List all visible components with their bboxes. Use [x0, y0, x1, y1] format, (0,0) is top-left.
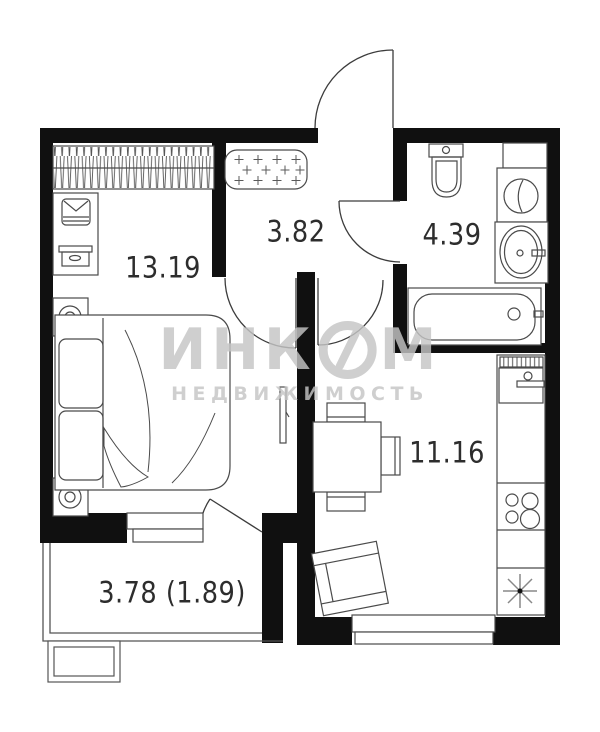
armchair [312, 541, 389, 615]
bathroom-door [339, 201, 400, 262]
watermark-logo-o-icon [319, 321, 377, 379]
toilet [429, 144, 463, 197]
wardrobe [53, 146, 214, 189]
chair-top [327, 403, 365, 422]
bedroom-window [127, 513, 203, 542]
kitchen-window [352, 615, 495, 644]
chair-right [381, 437, 400, 475]
watermark-subtitle: НЕДВИЖИМОСТЬ [159, 383, 442, 405]
washing-machine [497, 168, 547, 222]
room-label-hallway: 3.82 [266, 215, 325, 249]
entrance-door [315, 50, 393, 128]
bathroom-shelf [503, 143, 547, 168]
room-label-kitchen-living: 11.16 [409, 436, 485, 470]
balcony-door [203, 499, 262, 532]
bathroom-sink [495, 222, 548, 283]
watermark-title: ИНКМ [159, 321, 442, 379]
dining-table [313, 403, 400, 511]
watermark: ИНКМ НЕДВИЖИМОСТЬ [159, 321, 442, 405]
dresser [53, 193, 98, 275]
chair-bottom [327, 492, 365, 511]
fridge-snowflake-icon [503, 574, 537, 608]
room-label-bedroom: 13.19 [125, 251, 201, 285]
room-label-balcony: 3.78 (1.89) [98, 576, 246, 610]
watermark-text-left: ИНК [159, 322, 316, 379]
kitchen-counter [497, 355, 545, 615]
room-label-bathroom: 4.39 [422, 218, 481, 252]
watermark-text-right: М [380, 322, 442, 379]
balcony-ac-unit [48, 641, 120, 682]
doormat [225, 150, 307, 189]
floor-plan: ИНКМ НЕДВИЖИМОСТЬ 13.19 3.82 4.39 11.16 … [0, 0, 600, 732]
